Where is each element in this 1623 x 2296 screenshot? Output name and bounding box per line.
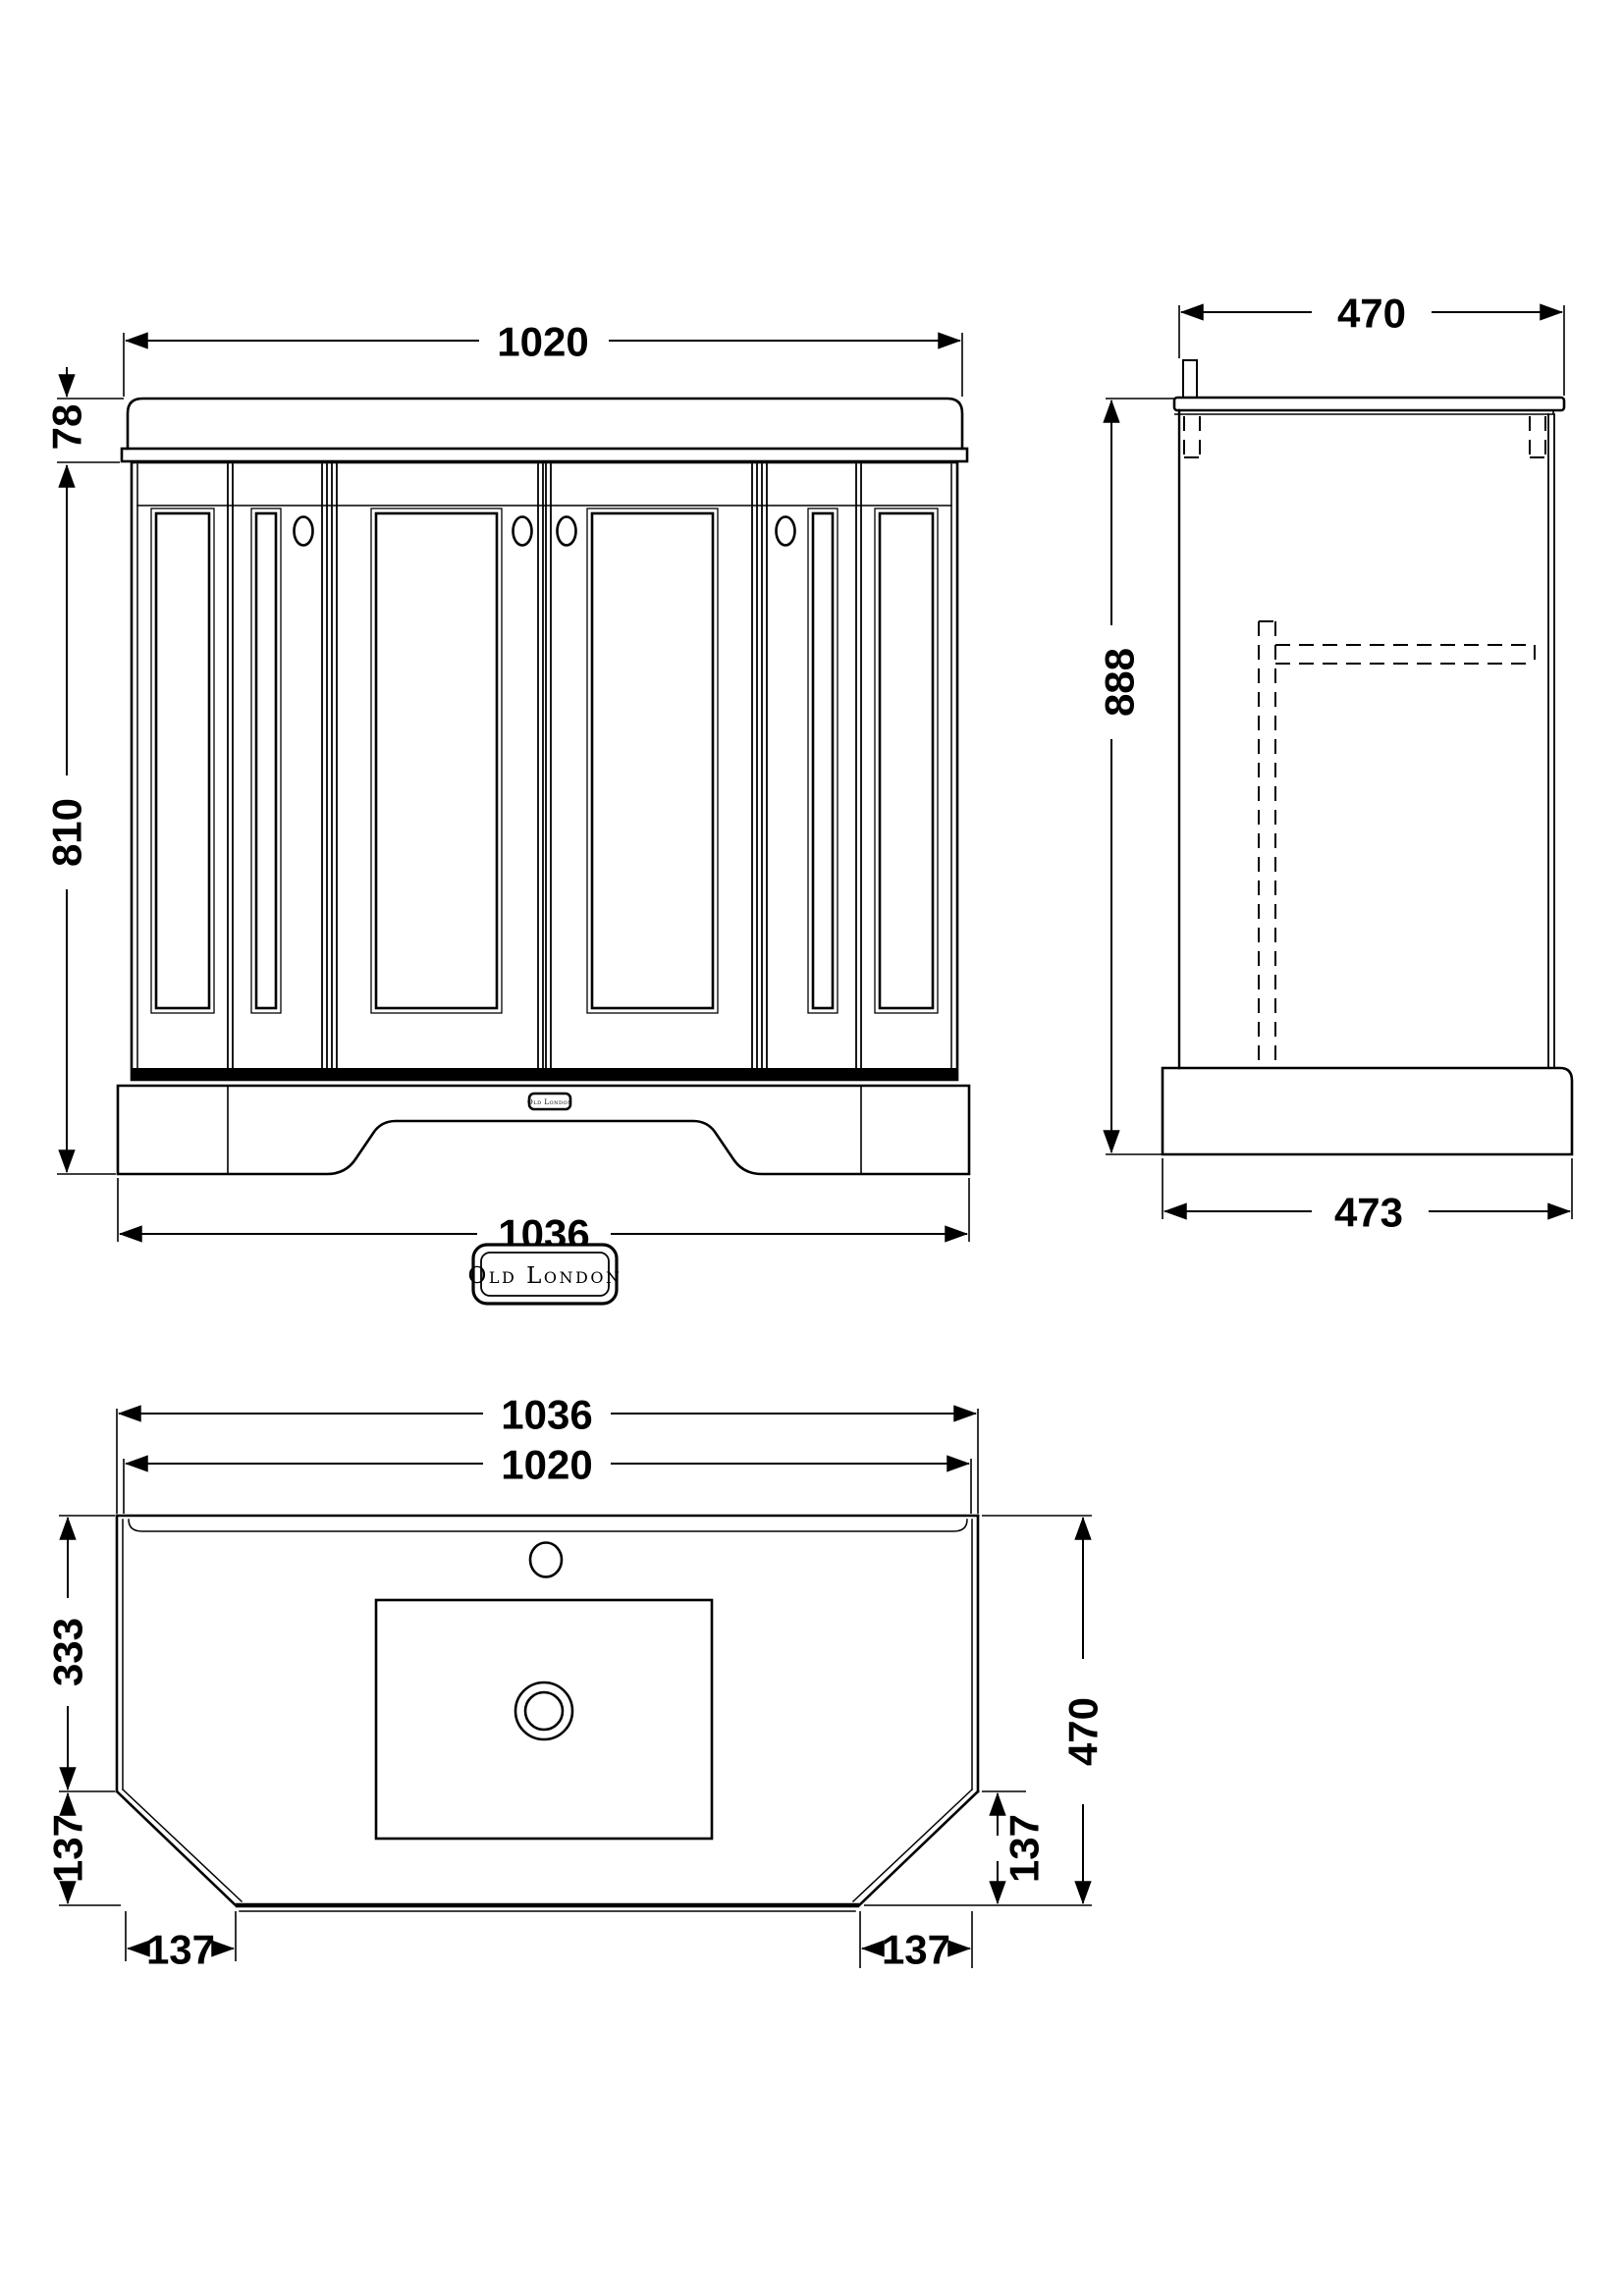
plan-tap-hole <box>530 1543 562 1577</box>
plan-view: 1036 1020 333 137 <box>45 1392 1107 1973</box>
dim-side-total-height: 888 <box>1097 648 1143 717</box>
brand-badge: Old London <box>468 1245 622 1304</box>
plan-left-chamfer <box>117 1791 236 1905</box>
dim-plan-total-depth: 470 <box>1060 1697 1107 1766</box>
front-counter-lip <box>122 449 967 461</box>
dim-front-top-width: 1020 <box>497 319 588 365</box>
plan-dim-back-depth: 333 <box>45 1516 116 1791</box>
side-dim-top-depth: 470 <box>1179 291 1564 397</box>
side-dim-base-depth: 473 <box>1163 1158 1572 1236</box>
side-hidden-brackets <box>1184 416 1545 457</box>
front-view: Old London 1020 78 810 <box>44 319 970 1257</box>
front-door-panels <box>151 508 938 1013</box>
plan-basin-outline <box>376 1600 712 1839</box>
plan-right-chamfer <box>859 1791 978 1905</box>
front-door-edges <box>228 464 861 1068</box>
dim-plan-right-edge: 137 <box>1001 1814 1048 1883</box>
side-backboard <box>1183 360 1197 398</box>
front-door-handles <box>295 517 795 546</box>
dim-plan-inner-width: 1020 <box>501 1442 592 1488</box>
door-handle-1 <box>295 517 313 546</box>
dim-plan-left-edge: 137 <box>45 1814 91 1883</box>
dim-front-cabinet-height: 810 <box>44 798 90 867</box>
dim-plan-left-front: 137 <box>146 1927 215 1973</box>
plinth-brand-text: Old London <box>527 1098 572 1106</box>
side-view: 470 888 473 <box>1097 291 1573 1236</box>
side-plinth <box>1163 1068 1572 1154</box>
technical-drawing-page: Old London 1020 78 810 <box>0 0 1623 2296</box>
plan-dim-inner-width: 1020 <box>124 1442 971 1515</box>
dim-side-top-depth: 470 <box>1337 291 1406 337</box>
dim-front-counter-height: 78 <box>44 404 90 451</box>
dim-plan-right-front: 137 <box>882 1927 950 1973</box>
front-dim-top-width: 1020 <box>124 319 962 398</box>
front-dim-counter-height: 78 <box>44 367 125 462</box>
plan-dim-right-edge: 137 <box>982 1791 1048 1903</box>
plan-dim-left-edge: 137 <box>45 1793 122 1905</box>
plan-dim-right-front: 137 <box>860 1911 972 1973</box>
plan-drain-inner <box>525 1692 563 1730</box>
drawing-canvas: Old London 1020 78 810 <box>0 0 1623 2296</box>
door-handle-3 <box>558 517 576 546</box>
side-hidden-shelf <box>1259 621 1535 1068</box>
brand-badge-text: Old London <box>468 1263 622 1289</box>
dim-side-base-depth: 473 <box>1334 1190 1403 1236</box>
plinth-brand-label: Old London <box>527 1094 572 1109</box>
front-dim-cabinet-height: 810 <box>44 465 117 1174</box>
front-countertop <box>128 399 962 449</box>
dim-plan-back-depth: 333 <box>45 1618 91 1686</box>
side-countertop <box>1174 398 1564 410</box>
door-handle-2 <box>514 517 532 546</box>
plan-dim-left-front: 137 <box>126 1911 236 1973</box>
side-dim-total-height: 888 <box>1097 399 1175 1154</box>
front-bottom-band <box>132 1068 957 1080</box>
plan-dim-total-depth: 470 <box>864 1516 1107 1905</box>
dim-plan-outer-width: 1036 <box>501 1392 592 1438</box>
door-handle-4 <box>777 517 795 546</box>
